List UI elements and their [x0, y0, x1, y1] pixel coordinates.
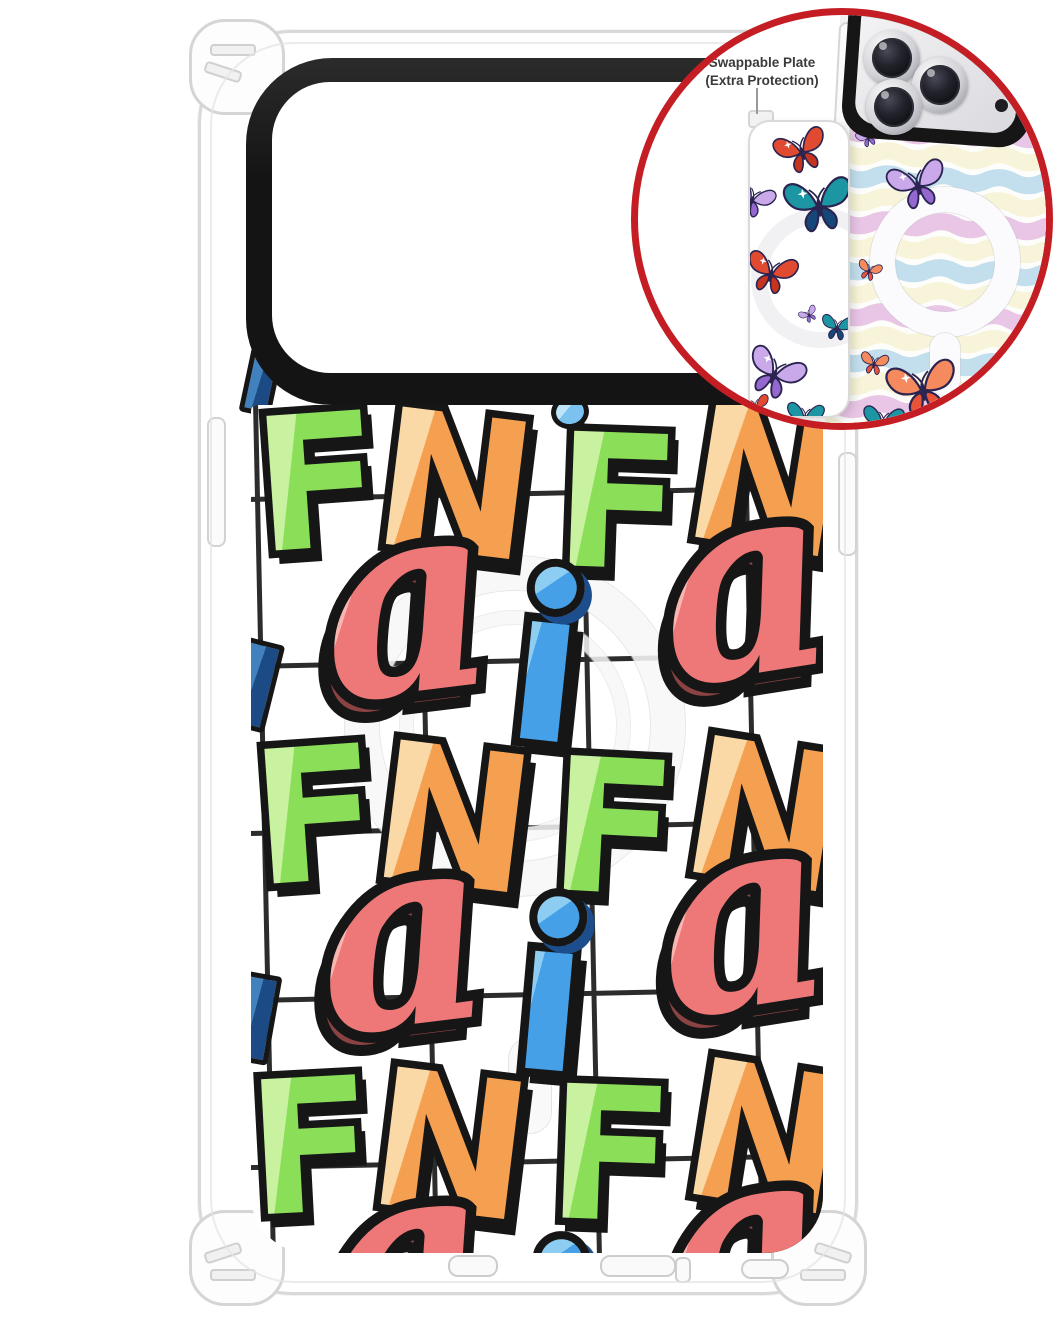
butterfly-teal: [778, 165, 850, 246]
bottom-notch: [675, 1257, 691, 1283]
swappable-plate: [748, 120, 850, 418]
letter-pattern: FFFNNNFFFNNNaaaıııaaaFFFNNNFFFNNNaaaıııa…: [251, 405, 823, 1253]
callout-leader-line: [756, 88, 758, 114]
butterfly-purple: [748, 170, 782, 230]
side-button-right: [838, 452, 857, 556]
callout-line1: Swappable Plate: [672, 54, 852, 72]
camera-lens-bottom: [866, 79, 922, 135]
butterfly-teal: [859, 399, 907, 430]
side-button-left: [207, 417, 226, 547]
butterfly-icon: [748, 170, 782, 230]
camera-lens-top: [864, 30, 920, 86]
product-image: FFFNNNFFFNNNaaaıııaaaFFFNNNFFFNNNaaaıııa…: [0, 0, 1064, 1330]
case-back-pattern: FFFNNNFFFNNNaaaıııaaaFFFNNNFFFNNNaaaıııa…: [251, 405, 823, 1253]
callout-line2: (Extra Protection): [672, 72, 852, 90]
bottom-port-slot: [448, 1255, 498, 1277]
butterfly-icon: [778, 165, 850, 246]
butterfly-teal: [818, 309, 850, 347]
butterfly-icon: [818, 309, 850, 347]
butterfly-icon: [783, 396, 827, 418]
detail-zoom-bubble: Swappable Plate (Extra Protection): [631, 8, 1053, 430]
bottom-speaker-slot: [600, 1255, 676, 1277]
bottom-slot-right: [741, 1259, 789, 1279]
butterfly-icon: [859, 399, 907, 430]
flash-icon: [995, 99, 1008, 112]
callout-label: Swappable Plate (Extra Protection): [672, 54, 852, 89]
butterfly-teal: [783, 396, 827, 418]
